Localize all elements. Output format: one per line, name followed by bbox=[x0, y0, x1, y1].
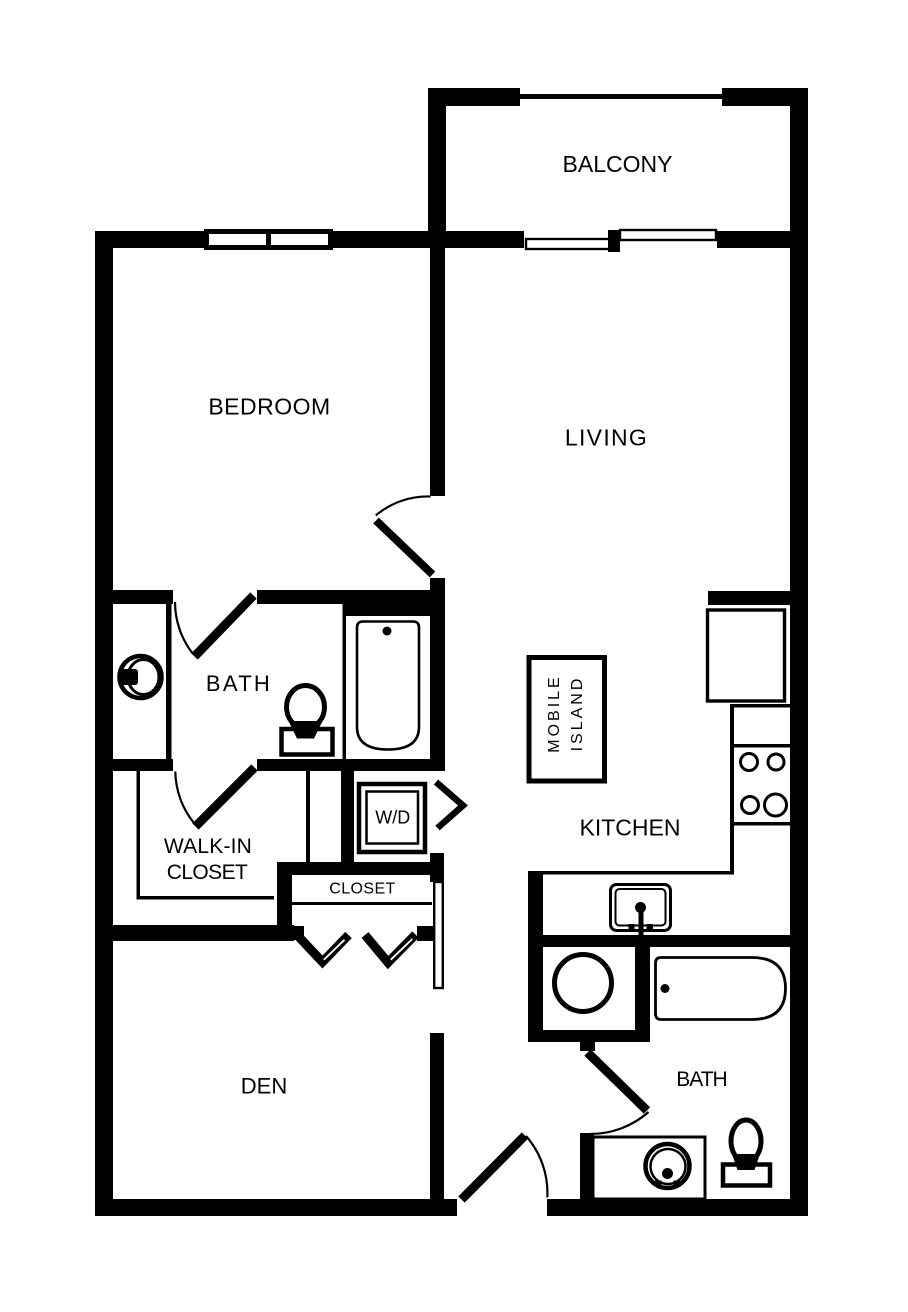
svg-text:CLOSET: CLOSET bbox=[329, 880, 395, 897]
svg-text:BEDROOM: BEDROOM bbox=[208, 393, 330, 419]
svg-text:LIVING: LIVING bbox=[565, 424, 648, 450]
svg-text:W/D: W/D bbox=[375, 807, 410, 827]
svg-text:BATH: BATH bbox=[206, 671, 272, 696]
svg-text:DEN: DEN bbox=[241, 1073, 287, 1098]
svg-text:BATH: BATH bbox=[676, 1068, 726, 1091]
svg-text:CLOSET: CLOSET bbox=[167, 861, 248, 884]
svg-text:BALCONY: BALCONY bbox=[563, 151, 673, 177]
svg-text:WALK-IN: WALK-IN bbox=[164, 835, 252, 858]
svg-text:KITCHEN: KITCHEN bbox=[580, 815, 681, 841]
